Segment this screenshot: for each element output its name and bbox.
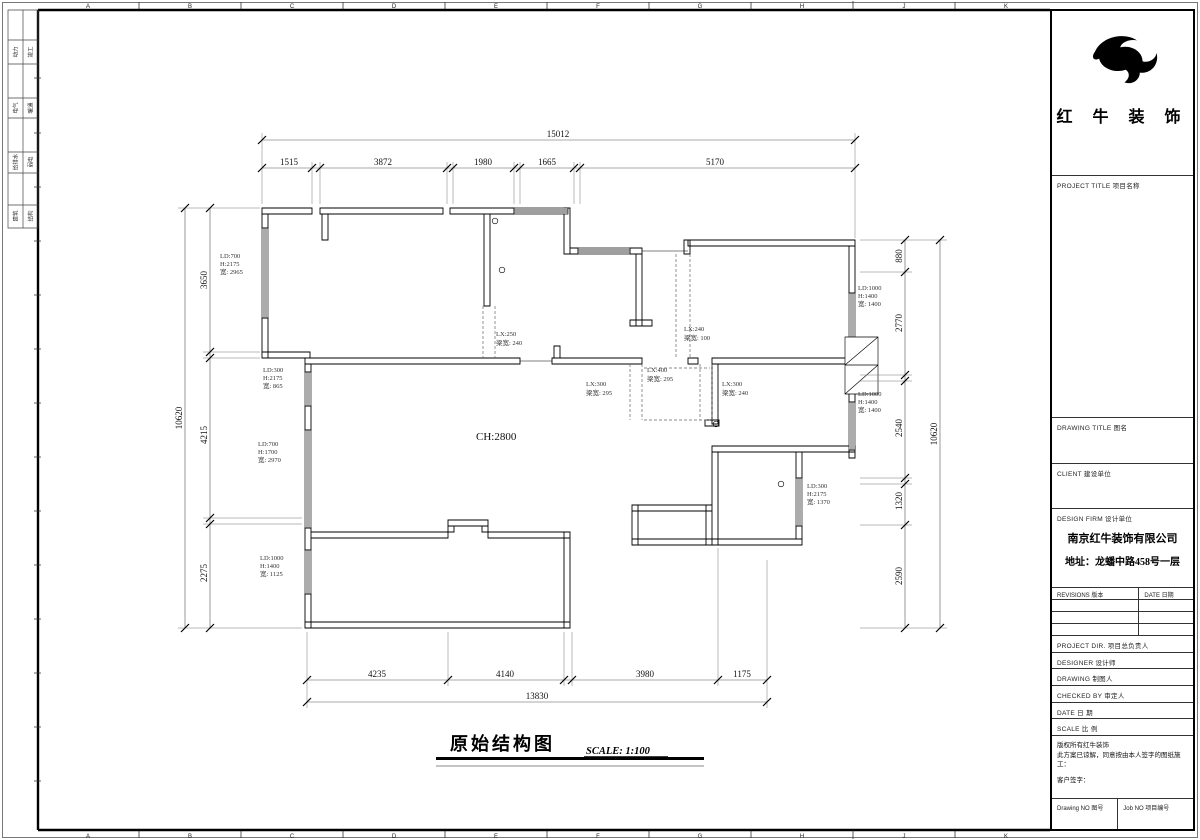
- plan-scale-note: SCALE: 1:100: [586, 746, 651, 757]
- grid-letter: G: [698, 4, 703, 10]
- window-label-line: H:1400: [858, 293, 878, 300]
- client-signature-label: 客户签字：: [1057, 776, 1189, 786]
- dim-top-seg: 1665: [538, 157, 557, 167]
- drawing-sheet: A B C D E F G H J K A B C D E F G H J K …: [0, 0, 1200, 840]
- design-firm-section: DESIGN FIRM 设计单位 南京红牛装饰有限公司 地址：龙蟠中路458号一…: [1052, 509, 1193, 588]
- revision-date-label: DATE 日期: [1139, 588, 1193, 599]
- grid-letter: A: [86, 834, 90, 840]
- dim-top-seg: 1515: [280, 157, 299, 167]
- revision-empty-row: [1052, 600, 1193, 612]
- grid-letter: H: [800, 834, 804, 840]
- drawing-no-label: Drawing NO 图号: [1052, 799, 1118, 829]
- company-address: 地址：龙蟠中路458号一层: [1052, 553, 1193, 568]
- revision-empty-row: [1052, 624, 1193, 635]
- grid-letter: D: [392, 834, 397, 840]
- dim-right-seg: 2540: [894, 419, 904, 438]
- drawing-title-label: DRAWING TITLE 图名: [1052, 418, 1193, 432]
- dim-left-total: 10620: [174, 406, 184, 429]
- drawing-person-row: DRAWING 制图人: [1052, 669, 1193, 686]
- window-label-line: 宽: 1400: [858, 405, 881, 414]
- discipline-label: 建筑: [12, 210, 20, 222]
- window-label-line: LD:300: [807, 483, 827, 490]
- grid-letter: F: [596, 834, 600, 840]
- grid-letter: G: [698, 834, 703, 840]
- discipline-label: 结构: [27, 210, 35, 222]
- window-label-line: LD:700: [220, 253, 240, 260]
- beam-label-line: LX:300: [586, 381, 606, 388]
- date-row: DATE 日 期: [1052, 703, 1193, 720]
- window-labels: LD:700 H:2175 宽: 2965 LD:300 H:2175 宽: 8…: [220, 253, 881, 578]
- discipline-label: 动力: [12, 46, 20, 57]
- dim-right-seg: 2770: [894, 314, 904, 333]
- drawing-title-section: DRAWING TITLE 图名: [1052, 418, 1193, 464]
- window-label-line: LD:1000: [858, 391, 881, 398]
- copyright-line2: 此方案已谅解，同意按由本人签字的图纸施工：: [1057, 751, 1189, 771]
- beam-label-line: 梁宽: 100: [684, 333, 710, 342]
- dim-top-seg: 1980: [474, 157, 493, 167]
- beam-label-line: 梁宽: 240: [722, 388, 748, 397]
- grid-letter: A: [86, 4, 90, 10]
- grid-letter: E: [494, 834, 498, 840]
- copyright-line1: 版权所有红牛装饰: [1057, 741, 1189, 751]
- redbull-logo-icon: [1081, 25, 1165, 95]
- grid-letter: E: [494, 4, 498, 10]
- grid-letter: J: [903, 834, 906, 840]
- window-label-line: LD:1000: [858, 285, 881, 292]
- window-label-line: 宽: 1400: [858, 299, 881, 308]
- beam-label-line: LX:250: [496, 331, 516, 338]
- revision-empty-row: [1052, 612, 1193, 624]
- window-label-line: H:2175: [220, 261, 240, 268]
- revisions-label: REVISIONS 版本: [1052, 588, 1139, 599]
- grid-letter: J: [903, 4, 906, 10]
- discipline-label: 给排水: [12, 153, 20, 170]
- plan-title: 原始结构图: [450, 733, 555, 754]
- floor-plan-walls: [262, 208, 878, 628]
- dimension-texts: 15012 1515 3872 1980 1665 5170 10620 365…: [174, 129, 939, 701]
- dim-left-seg: 3650: [199, 271, 209, 290]
- dim-right-seg: 880: [894, 249, 904, 263]
- window-label-line: H:1400: [260, 563, 280, 570]
- discipline-label: 电气: [12, 102, 20, 114]
- floor-plan-canvas: A B C D E F G H J K A B C D E F G H J K …: [0, 0, 1050, 840]
- dim-bottom-seg: 1175: [733, 669, 751, 679]
- window-label-line: 宽: 2965: [220, 267, 243, 276]
- window-label-line: LD:700: [258, 441, 278, 448]
- beam-label-line: 梁宽: 240: [496, 338, 522, 347]
- window-label-line: H:2175: [807, 491, 827, 498]
- project-title-label: PROJECT TITLE 项目名称: [1052, 176, 1193, 190]
- dim-left-seg: 2275: [199, 564, 209, 583]
- wall-openings: [520, 251, 688, 361]
- plan-circle-marker: [492, 218, 498, 224]
- discipline-label: 暖通: [27, 102, 35, 114]
- dim-bottom-seg: 4140: [496, 669, 515, 679]
- titleblock-footer: Drawing NO 图号 Job NO 项目编号: [1052, 799, 1193, 829]
- designer-row: DESIGNER 设计师: [1052, 653, 1193, 670]
- company-name: 南京红牛装饰有限公司: [1052, 530, 1193, 546]
- dim-right-seg: 2590: [894, 567, 904, 586]
- grid-letter: B: [188, 4, 192, 10]
- grid-letter: K: [1004, 834, 1008, 840]
- grid-letter: B: [188, 834, 192, 840]
- discipline-strip: 动力 竣工 电气 暖通 给排水 弱电 建筑 结构: [8, 10, 38, 228]
- beam-label-line: 梁宽: 295: [586, 388, 612, 397]
- discipline-label: 竣工: [27, 46, 35, 58]
- beam-label-line: 梁宽: 295: [647, 374, 673, 383]
- beam-label-line: LX:240: [684, 326, 704, 333]
- window-label-line: 宽: 865: [263, 381, 283, 390]
- plan-circle-marker: [778, 481, 784, 487]
- window-label-line: 宽: 1125: [260, 569, 283, 578]
- title-block: 红 牛 装 饰 PROJECT TITLE 项目名称 DRAWING TITLE…: [1050, 9, 1195, 831]
- beam-label-line: LX:400: [647, 367, 667, 374]
- flue-shaft-boxes: [845, 337, 878, 394]
- design-firm-label: DESIGN FIRM 设计单位: [1052, 509, 1193, 523]
- ceiling-height-label: CH:2800: [476, 431, 517, 443]
- grid-letter: F: [596, 4, 600, 10]
- grid-letter: H: [800, 4, 804, 10]
- title-underline-thick: [436, 757, 704, 760]
- copyright-section: 版权所有红牛装饰 此方案已谅解，同意按由本人签字的图纸施工： 客户签字：: [1052, 736, 1193, 799]
- dim-top-total: 15012: [547, 129, 570, 139]
- checked-by-row: CHECKED BY 审定人: [1052, 686, 1193, 703]
- grid-letter: C: [290, 4, 295, 10]
- client-label: CLIENT 建设单位: [1052, 464, 1193, 478]
- logo-section: 红 牛 装 饰: [1052, 11, 1193, 176]
- revisions-header-row: REVISIONS 版本 DATE 日期: [1052, 588, 1193, 600]
- scale-row: SCALE 比 例: [1052, 719, 1193, 736]
- window-label-line: H:2175: [263, 375, 283, 382]
- beam-label-line: LX:300: [722, 381, 742, 388]
- project-director-row: PROJECT DIR. 项目总负责人: [1052, 636, 1193, 653]
- client-section: CLIENT 建设单位: [1052, 464, 1193, 509]
- window-label-line: H:1700: [258, 449, 278, 456]
- window-label-line: 宽: 1370: [807, 497, 830, 506]
- window-label-line: LD:300: [263, 367, 283, 374]
- window-label-line: 宽: 2970: [258, 455, 281, 464]
- job-no-label: Job NO 项目编号: [1118, 799, 1193, 829]
- grid-letter: D: [392, 4, 397, 10]
- dim-right-seg: 1320: [894, 492, 904, 511]
- project-title-section: PROJECT TITLE 项目名称: [1052, 176, 1193, 418]
- plan-circle-marker: [499, 267, 505, 273]
- plan-title-group: 原始结构图 SCALE: 1:100: [436, 733, 704, 766]
- discipline-label: 弱电: [27, 156, 35, 168]
- window-label-line: LD:1000: [260, 555, 283, 562]
- dim-top-seg: 5170: [706, 157, 725, 167]
- brand-name: 红 牛 装 饰: [1052, 103, 1193, 127]
- dim-left-seg: 4215: [199, 426, 209, 445]
- dim-bottom-seg: 3980: [636, 669, 655, 679]
- revisions-table: REVISIONS 版本 DATE 日期: [1052, 588, 1193, 636]
- dim-right-total: 10620: [929, 422, 939, 445]
- grid-letter: K: [1004, 4, 1008, 10]
- dim-top-seg: 3872: [374, 157, 392, 167]
- window-label-line: H:1400: [858, 399, 878, 406]
- grid-letter: C: [290, 834, 295, 840]
- dim-bottom-seg: 4235: [368, 669, 387, 679]
- dim-bottom-total: 13830: [526, 691, 549, 701]
